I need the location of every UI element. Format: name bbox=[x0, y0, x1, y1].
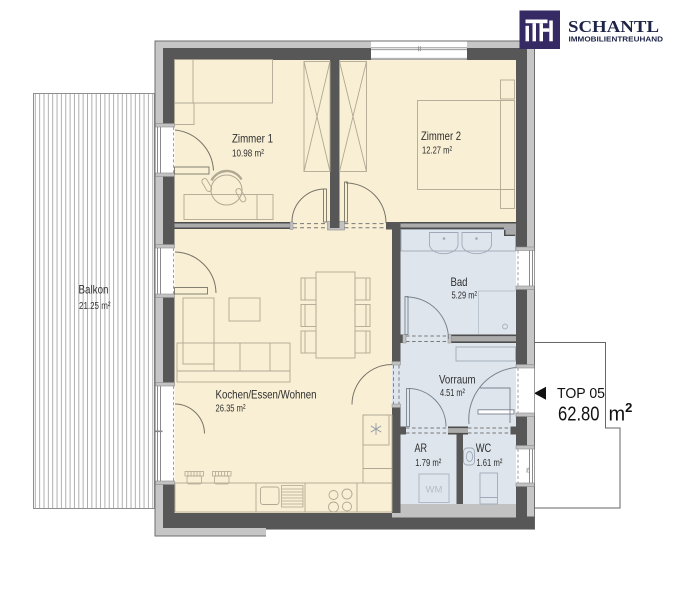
svg-text:Zimmer 1: Zimmer 1 bbox=[232, 132, 273, 146]
svg-text:1.61 m²: 1.61 m² bbox=[476, 457, 502, 469]
svg-text:Vorraum: Vorraum bbox=[439, 373, 476, 387]
svg-text:PK: PK bbox=[525, 467, 530, 473]
svg-text:Balkon: Balkon bbox=[79, 283, 109, 297]
svg-text:62.80: 62.80 bbox=[558, 404, 600, 426]
svg-text:Zimmer 2: Zimmer 2 bbox=[421, 129, 461, 143]
svg-text:1.79 m²: 1.79 m² bbox=[415, 457, 441, 469]
svg-text:10.98 m²: 10.98 m² bbox=[232, 148, 264, 160]
svg-text:12.27 m²: 12.27 m² bbox=[422, 145, 452, 157]
svg-text:26.35 m²: 26.35 m² bbox=[216, 403, 246, 415]
svg-text:TOP 05: TOP 05 bbox=[557, 386, 605, 402]
svg-text:SCHANTL: SCHANTL bbox=[568, 17, 659, 36]
svg-text:4.51 m²: 4.51 m² bbox=[440, 387, 465, 399]
svg-text:WC: WC bbox=[476, 441, 492, 455]
svg-text:5.29 m²: 5.29 m² bbox=[452, 290, 478, 302]
svg-text:WM: WM bbox=[426, 485, 443, 496]
svg-text:Bad: Bad bbox=[451, 275, 468, 289]
svg-text:AR: AR bbox=[415, 441, 428, 455]
svg-text:Kochen/Essen/Wohnen: Kochen/Essen/Wohnen bbox=[216, 388, 317, 402]
svg-text:IMMOBILIENTREUHAND: IMMOBILIENTREUHAND bbox=[569, 37, 664, 44]
svg-text:21.25 m²: 21.25 m² bbox=[79, 300, 111, 312]
